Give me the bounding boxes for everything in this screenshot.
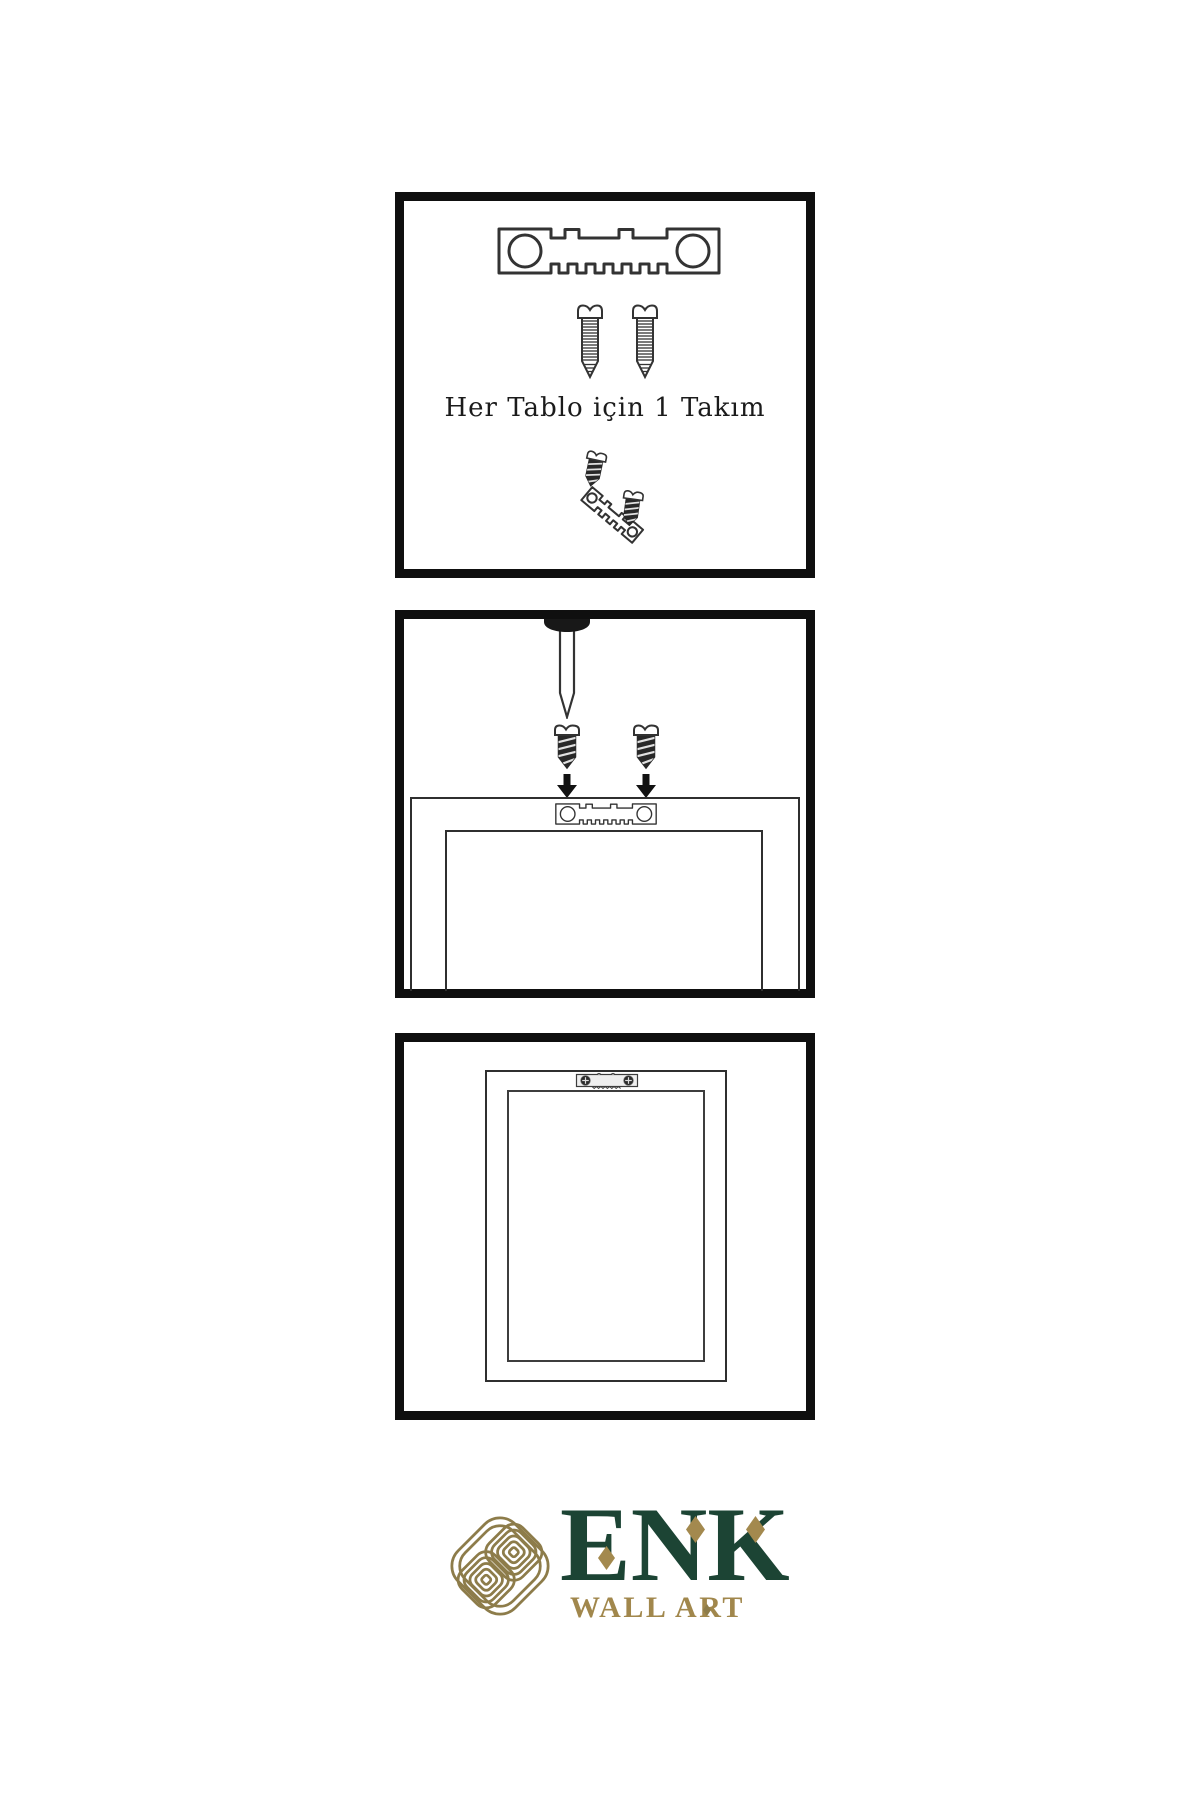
step-panel-hardware-kit: Her Tablo için 1 Takım bbox=[395, 192, 815, 578]
step-panel-mounted-frame bbox=[395, 1033, 815, 1420]
wall-nail-icon bbox=[541, 619, 593, 719]
frame-back-inner-edge bbox=[445, 830, 763, 991]
brand-wordmark: ENK bbox=[560, 1492, 790, 1598]
knot-icon bbox=[438, 1501, 562, 1631]
diamond-icon bbox=[703, 1604, 711, 1616]
screw-icon bbox=[625, 301, 665, 381]
down-arrow-icon bbox=[557, 774, 577, 798]
screw-icon bbox=[570, 301, 610, 381]
mounted-sawtooth-hanger-icon bbox=[575, 1072, 639, 1090]
diamond-icon bbox=[598, 1546, 615, 1570]
sawtooth-hanger-icon bbox=[554, 801, 658, 827]
step-panel-attach-hanger bbox=[395, 610, 815, 998]
brand-subtitle: WALL ART bbox=[570, 1593, 745, 1623]
diamond-icon bbox=[686, 1516, 705, 1543]
diamond-icon bbox=[746, 1516, 765, 1543]
tilted-sawtooth-hanger-icon bbox=[561, 443, 661, 551]
sawtooth-hanger-icon bbox=[495, 225, 723, 277]
dark-screw-icon bbox=[629, 722, 663, 770]
frame-back-inner-edge bbox=[507, 1090, 705, 1362]
kit-caption: Her Tablo için 1 Takım bbox=[404, 393, 806, 423]
down-arrow-icon bbox=[636, 774, 656, 798]
dark-screw-icon bbox=[550, 722, 584, 770]
instruction-sheet: Her Tablo için 1 Takım bbox=[0, 0, 1200, 1800]
